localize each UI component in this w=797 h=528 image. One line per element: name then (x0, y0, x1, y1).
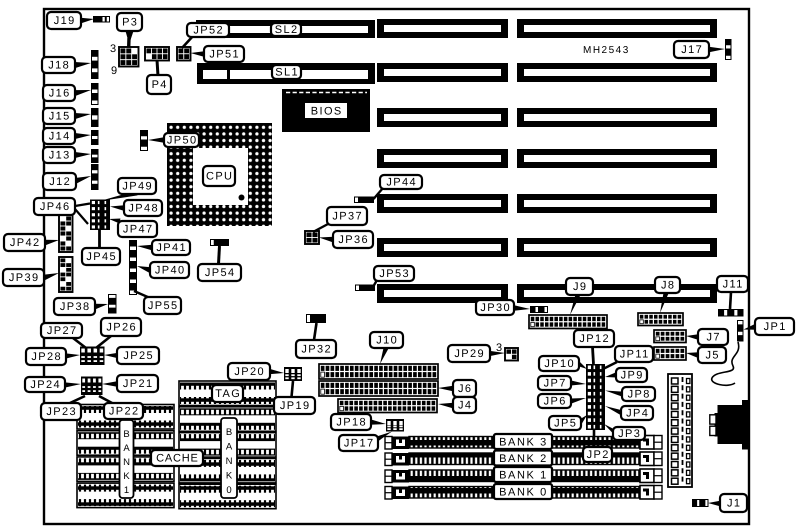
svg-text:JP12: JP12 (579, 333, 610, 345)
svg-text:JP22: JP22 (109, 406, 140, 418)
svg-text:JP38: JP38 (60, 301, 91, 313)
svg-text:JP3: JP3 (618, 428, 641, 440)
svg-text:BANK 1: BANK 1 (499, 470, 548, 482)
svg-text:TAG: TAG (215, 388, 241, 400)
svg-text:SL1: SL1 (275, 67, 299, 79)
svg-text:J11: J11 (723, 279, 744, 291)
svg-text:JP55: JP55 (148, 300, 179, 312)
svg-text:J4: J4 (458, 400, 472, 412)
svg-text:A: A (226, 442, 233, 453)
svg-text:JP18: JP18 (336, 417, 367, 429)
svg-text:J5: J5 (705, 350, 719, 362)
svg-text:J13: J13 (49, 150, 71, 162)
svg-text:JP11: JP11 (620, 349, 650, 361)
svg-text:CPU: CPU (206, 171, 233, 183)
svg-text:JP2: JP2 (587, 449, 610, 461)
svg-text:SL2: SL2 (275, 24, 299, 36)
svg-text:JP51: JP51 (209, 49, 240, 61)
svg-text:N: N (123, 457, 130, 468)
svg-text:JP4: JP4 (626, 408, 649, 420)
svg-text:K: K (226, 470, 233, 481)
svg-text:JP17: JP17 (344, 438, 375, 450)
svg-text:P4: P4 (152, 79, 168, 91)
svg-text:K: K (123, 471, 130, 482)
svg-text:JP52: JP52 (193, 25, 224, 37)
svg-text:BANK 2: BANK 2 (499, 453, 548, 465)
svg-text:A: A (123, 443, 130, 454)
svg-text:JP28: JP28 (31, 351, 62, 363)
svg-text:J16: J16 (49, 88, 71, 100)
svg-text:BANK 3: BANK 3 (499, 437, 548, 449)
svg-text:J9: J9 (573, 281, 587, 293)
svg-text:0: 0 (226, 485, 231, 496)
svg-text:N: N (226, 456, 233, 467)
svg-text:JP48: JP48 (128, 203, 159, 215)
svg-text:JP44: JP44 (386, 177, 417, 189)
svg-text:CACHE: CACHE (156, 453, 199, 465)
svg-text:B: B (123, 429, 129, 440)
svg-text:B: B (226, 427, 232, 438)
svg-text:JP39: JP39 (9, 272, 40, 284)
svg-text:J1: J1 (727, 498, 741, 510)
svg-text:JP45: JP45 (86, 251, 117, 263)
svg-text:JP20: JP20 (234, 366, 265, 378)
svg-text:JP5: JP5 (554, 418, 577, 430)
svg-text:J12: J12 (49, 176, 71, 188)
svg-text:JP23: JP23 (46, 406, 77, 418)
svg-text:JP46: JP46 (40, 201, 71, 213)
svg-text:9: 9 (111, 65, 117, 77)
svg-text:J10: J10 (376, 335, 398, 347)
svg-text:JP42: JP42 (10, 237, 41, 249)
svg-text:J6: J6 (458, 383, 472, 395)
svg-text:J7: J7 (706, 332, 720, 344)
svg-text:JP32: JP32 (301, 344, 332, 356)
svg-text:JP41: JP41 (156, 242, 187, 254)
svg-text:JP24: JP24 (30, 379, 61, 391)
svg-text:3: 3 (110, 43, 116, 55)
svg-text:JP10: JP10 (544, 358, 575, 370)
svg-text:J17: J17 (681, 44, 703, 56)
svg-text:JP27: JP27 (47, 325, 78, 337)
svg-text:JP25: JP25 (123, 350, 154, 362)
svg-text:JP50: JP50 (167, 135, 198, 147)
svg-text:BANK 0: BANK 0 (499, 487, 548, 499)
svg-text:MH2543: MH2543 (583, 45, 630, 56)
svg-text:JP53: JP53 (379, 268, 410, 280)
svg-text:3: 3 (496, 342, 502, 354)
svg-text:JP9: JP9 (621, 370, 644, 382)
svg-text:J8: J8 (661, 280, 675, 292)
svg-text:JP7: JP7 (544, 378, 567, 390)
svg-text:JP26: JP26 (106, 322, 137, 334)
svg-text:BIOS: BIOS (311, 106, 343, 118)
svg-text:JP40: JP40 (155, 265, 186, 277)
svg-text:JP30: JP30 (480, 302, 511, 314)
svg-text:JP37: JP37 (332, 211, 363, 223)
svg-text:JP8: JP8 (628, 389, 651, 401)
svg-text:JP36: JP36 (338, 234, 369, 246)
svg-text:JP47: JP47 (123, 224, 154, 236)
svg-text:J15: J15 (49, 111, 71, 123)
svg-text:1: 1 (124, 485, 129, 496)
svg-text:J19: J19 (54, 15, 76, 27)
svg-text:JP21: JP21 (123, 378, 154, 390)
svg-text:JP29: JP29 (454, 348, 485, 360)
svg-text:JP19: JP19 (280, 400, 311, 412)
svg-text:JP49: JP49 (122, 181, 153, 193)
svg-text:P3: P3 (122, 17, 138, 29)
svg-text:J14: J14 (49, 131, 71, 143)
svg-text:JP1: JP1 (764, 321, 787, 333)
svg-text:JP54: JP54 (205, 267, 236, 279)
svg-text:J18: J18 (48, 60, 70, 72)
svg-text:JP6: JP6 (544, 396, 567, 408)
